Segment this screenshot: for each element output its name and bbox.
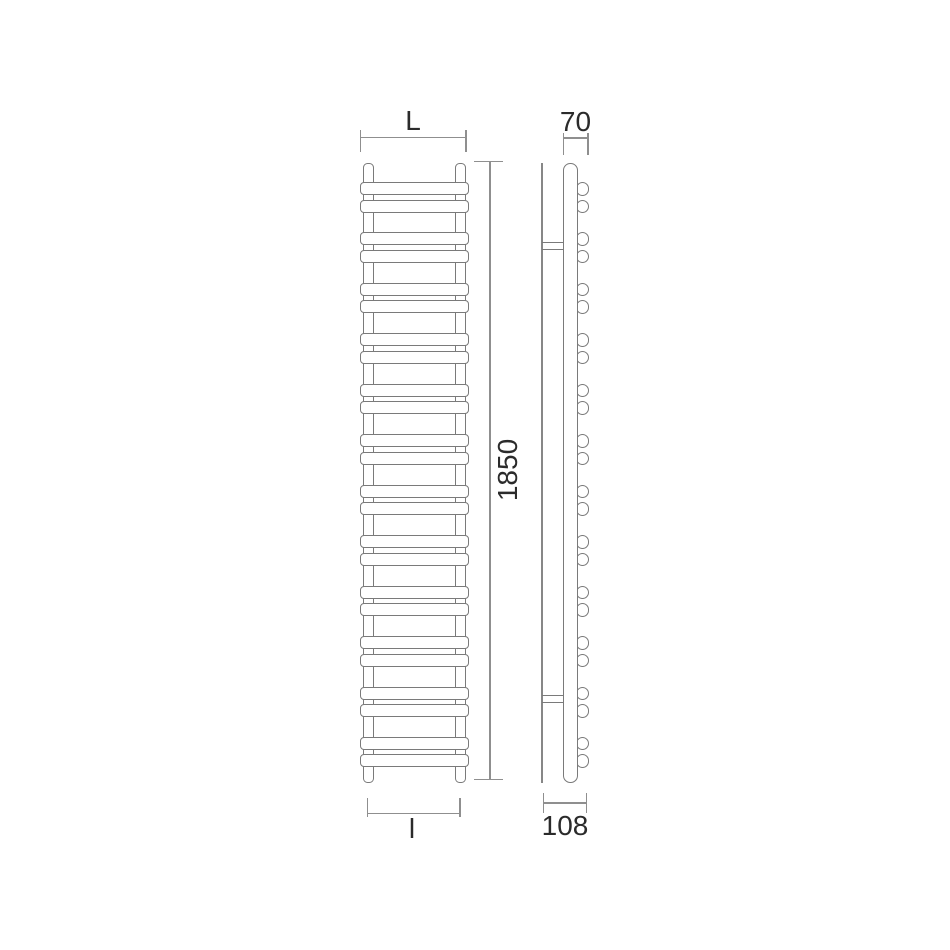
towel-bar-end-circle <box>576 401 590 415</box>
towel-bar-end-circle <box>576 333 590 347</box>
towel-bar <box>360 452 469 465</box>
towel-bar-end-circle <box>576 754 590 768</box>
towel-bar-end-circle <box>576 300 590 314</box>
towel-bar-end-circle <box>576 232 590 246</box>
dim-tick-right <box>459 798 460 818</box>
towel-bar-end-circle <box>576 687 590 701</box>
dim-tick-right <box>465 130 466 152</box>
towel-bar-end-circle <box>576 704 590 718</box>
towel-bar <box>360 553 469 566</box>
towel-bar-end-circle <box>576 384 590 398</box>
towel-bar <box>360 434 469 447</box>
towel-bar <box>360 182 469 195</box>
towel-bar-end-circle <box>576 737 590 751</box>
dim-label-108: 108 <box>542 812 589 840</box>
towel-bar <box>360 535 469 548</box>
dim-label-l: l <box>409 815 415 843</box>
towel-bar-end-circle <box>576 351 590 365</box>
dim-label-L: L <box>405 107 421 135</box>
dim-line <box>489 161 490 780</box>
towel-bar <box>360 283 469 296</box>
towel-bar <box>360 502 469 515</box>
dim-line <box>543 802 587 803</box>
towel-bar-end-circle <box>576 603 590 617</box>
dim-tick-top <box>474 161 503 162</box>
towel-bar-end-circle <box>576 283 590 297</box>
towel-bar <box>360 704 469 717</box>
towel-bar-end-circle <box>576 535 590 549</box>
wall-bracket-top <box>542 242 564 250</box>
towel-bar-end-circle <box>576 452 590 466</box>
dim-label-1850: 1850 <box>494 439 522 501</box>
towel-bar <box>360 687 469 700</box>
towel-bar <box>360 654 469 667</box>
towel-bar <box>360 485 469 498</box>
dim-tick-left <box>367 798 368 818</box>
towel-bar <box>360 603 469 616</box>
towel-bar <box>360 401 469 414</box>
towel-bar <box>360 384 469 397</box>
dim-line <box>361 137 467 138</box>
towel-bar-end-circle <box>576 502 590 516</box>
dim-line <box>563 137 589 138</box>
radiator-technical-drawing: L 1850 l 70 108 <box>0 0 950 950</box>
towel-bar <box>360 586 469 599</box>
dim-tick-bottom <box>474 779 503 780</box>
side-rail-profile <box>563 163 578 783</box>
towel-bar <box>360 200 469 213</box>
towel-bar-end-circle <box>576 654 590 668</box>
towel-bar-end-circle <box>576 434 590 448</box>
dim-label-70: 70 <box>560 108 591 136</box>
towel-bar <box>360 754 469 767</box>
side-wall-line <box>541 163 543 783</box>
dim-tick-left <box>360 130 361 152</box>
towel-bar-end-circle <box>576 182 590 196</box>
towel-bar <box>360 737 469 750</box>
towel-bar-end-circle <box>576 586 590 600</box>
towel-bar <box>360 300 469 313</box>
towel-bar-end-circle <box>576 636 590 650</box>
towel-bar <box>360 232 469 245</box>
towel-bar <box>360 250 469 263</box>
towel-bar-end-circle <box>576 200 590 214</box>
towel-bar-end-circle <box>576 250 590 264</box>
towel-bar-end-circle <box>576 553 590 567</box>
towel-bar <box>360 636 469 649</box>
towel-bar-end-circle <box>576 485 590 499</box>
towel-bar <box>360 351 469 364</box>
towel-bar <box>360 333 469 346</box>
wall-bracket-bottom <box>542 695 564 703</box>
